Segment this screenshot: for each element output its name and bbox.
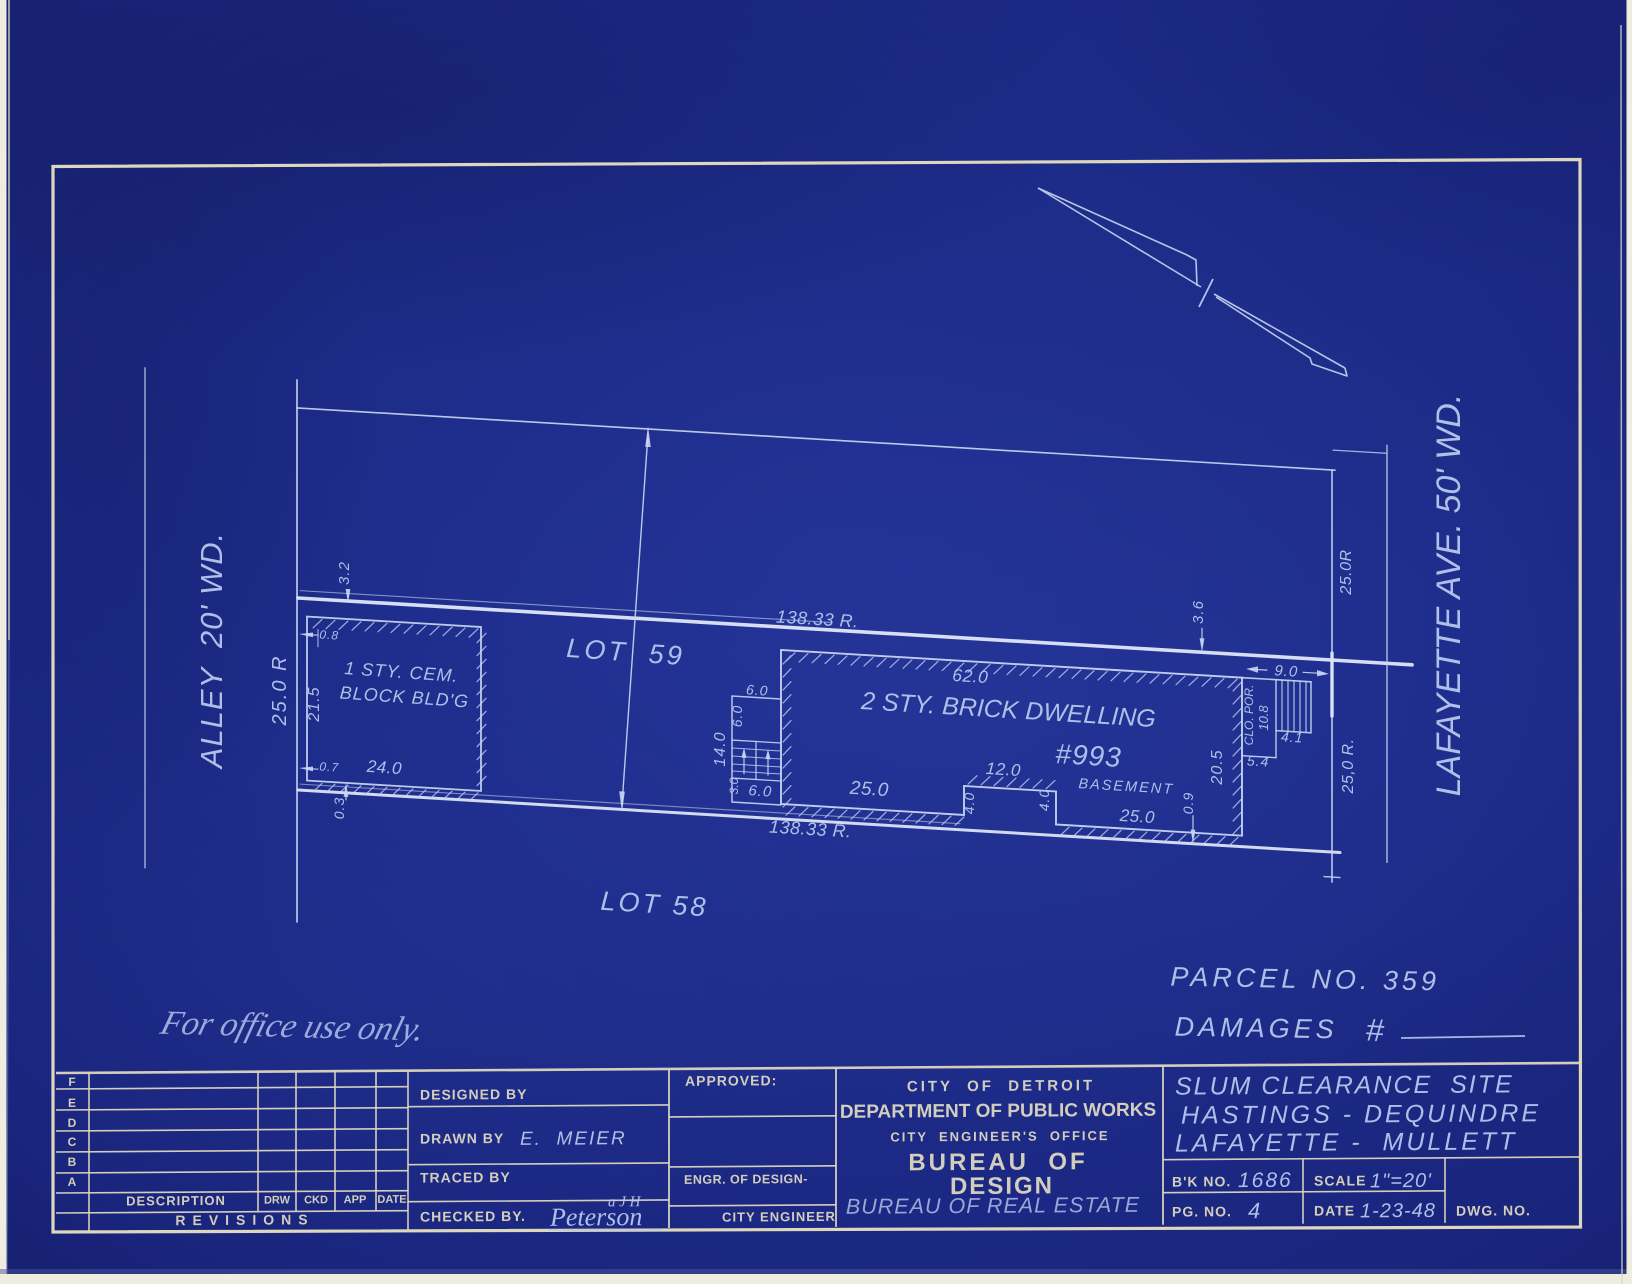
svg-text:DESCRIPTION: DESCRIPTION: [126, 1193, 226, 1209]
svg-text:0.9: 0.9: [1180, 792, 1196, 814]
svg-text:PG. NO.: PG. NO.: [1172, 1203, 1232, 1219]
svg-text:DRW: DRW: [264, 1194, 291, 1206]
svg-text:#993: #993: [1055, 738, 1123, 773]
svg-text:ENGR. OF DESIGN-: ENGR. OF DESIGN-: [684, 1172, 808, 1187]
svg-text:F: F: [68, 1075, 75, 1089]
svg-text:DEPARTMENT OF PUBLIC WORKS: DEPARTMENT OF PUBLIC WORKS: [840, 1100, 1156, 1123]
svg-text:1-23-48: 1-23-48: [1360, 1200, 1436, 1223]
svg-text:10.8: 10.8: [1256, 705, 1271, 731]
svg-text:0.8: 0.8: [319, 627, 340, 642]
svg-text:For office use only.: For office use only.: [156, 1004, 430, 1048]
svg-text:DAMAGES: DAMAGES: [1174, 1012, 1338, 1045]
svg-text:3.2: 3.2: [336, 561, 353, 585]
svg-text:62.0: 62.0: [952, 665, 989, 687]
svg-text:21.5: 21.5: [306, 686, 323, 722]
svg-text:24.0: 24.0: [365, 757, 402, 778]
svg-text:4.0: 4.0: [961, 792, 977, 814]
svg-text:DATE: DATE: [377, 1194, 406, 1206]
svg-text:CITY ENGINEER: CITY ENGINEER: [722, 1209, 836, 1225]
svg-text:25,0 R.: 25,0 R.: [1340, 738, 1357, 794]
svg-text:25.0: 25.0: [848, 778, 889, 801]
svg-text:CITY OF DETROIT: CITY OF DETROIT: [907, 1077, 1095, 1095]
svg-text:a J H: a J H: [608, 1194, 642, 1210]
svg-text:ALLEY 20' WD.: ALLEY 20' WD.: [194, 532, 229, 770]
svg-text:APPROVED:: APPROVED:: [685, 1072, 777, 1089]
svg-text:TRACED BY: TRACED BY: [420, 1169, 511, 1186]
svg-text:D: D: [68, 1116, 77, 1130]
svg-text:B'K NO.: B'K NO.: [1172, 1173, 1231, 1189]
svg-text:12.0: 12.0: [985, 759, 1021, 780]
svg-text:4.1: 4.1: [1281, 728, 1304, 745]
svg-text:DATE: DATE: [1314, 1202, 1355, 1218]
svg-text:6.0: 6.0: [746, 681, 770, 699]
svg-text:SLUM CLEARANCE SITE: SLUM CLEARANCE SITE: [1175, 1070, 1514, 1100]
svg-text:1"=20': 1"=20': [1370, 1170, 1432, 1192]
svg-text:HASTINGS - DEQUINDRE: HASTINGS - DEQUINDRE: [1181, 1099, 1541, 1129]
svg-text:DWG. NO.: DWG. NO.: [1456, 1202, 1531, 1218]
svg-text:B: B: [68, 1155, 77, 1169]
svg-text:25.0: 25.0: [1118, 806, 1155, 827]
svg-text:20.5: 20.5: [1209, 749, 1226, 785]
svg-text:E. MEIER: E. MEIER: [520, 1128, 627, 1150]
svg-text:0.3: 0.3: [331, 797, 347, 819]
svg-text:0.7: 0.7: [319, 759, 340, 774]
svg-text:C: C: [68, 1135, 77, 1149]
svg-text:6.0: 6.0: [748, 782, 773, 801]
svg-text:DRAWN BY: DRAWN BY: [420, 1130, 504, 1147]
svg-text:REVISIONS: REVISIONS: [175, 1211, 314, 1228]
svg-text:APP: APP: [344, 1194, 367, 1206]
svg-text:DESIGNED BY: DESIGNED BY: [420, 1086, 527, 1103]
svg-text:CHECKED BY.: CHECKED BY.: [420, 1208, 526, 1225]
svg-text:A: A: [68, 1175, 77, 1189]
svg-text:LAFAYETTE AVE. 50' WD.: LAFAYETTE AVE. 50' WD.: [1430, 394, 1468, 797]
svg-text:3.0: 3.0: [727, 777, 741, 794]
svg-text:CITY ENGINEER'S OFFICE: CITY ENGINEER'S OFFICE: [890, 1128, 1109, 1144]
svg-text:25.0 R: 25.0 R: [269, 655, 291, 727]
svg-text:25.0R: 25.0R: [1338, 549, 1355, 595]
svg-text:6.0: 6.0: [729, 705, 745, 727]
svg-text:CLO. POR.: CLO. POR.: [1242, 685, 1256, 746]
svg-text:4: 4: [1248, 1198, 1260, 1223]
svg-text:CKD: CKD: [304, 1194, 328, 1206]
svg-text:4.0: 4.0: [1036, 789, 1052, 811]
svg-text:SCALE: SCALE: [1314, 1172, 1366, 1188]
svg-text:14.0: 14.0: [712, 731, 729, 766]
svg-text:LAFAYETTE - MULLETT: LAFAYETTE - MULLETT: [1175, 1127, 1517, 1157]
svg-text:BUREAU OF REAL ESTATE: BUREAU OF REAL ESTATE: [846, 1193, 1140, 1219]
svg-text:9.0: 9.0: [1274, 662, 1299, 680]
svg-text:5.4: 5.4: [1247, 752, 1270, 769]
svg-text:PARCEL NO. 359: PARCEL NO. 359: [1170, 962, 1440, 997]
svg-text:3.6: 3.6: [1190, 600, 1207, 624]
svg-text:1686: 1686: [1238, 1169, 1293, 1192]
svg-text:E: E: [68, 1096, 76, 1110]
